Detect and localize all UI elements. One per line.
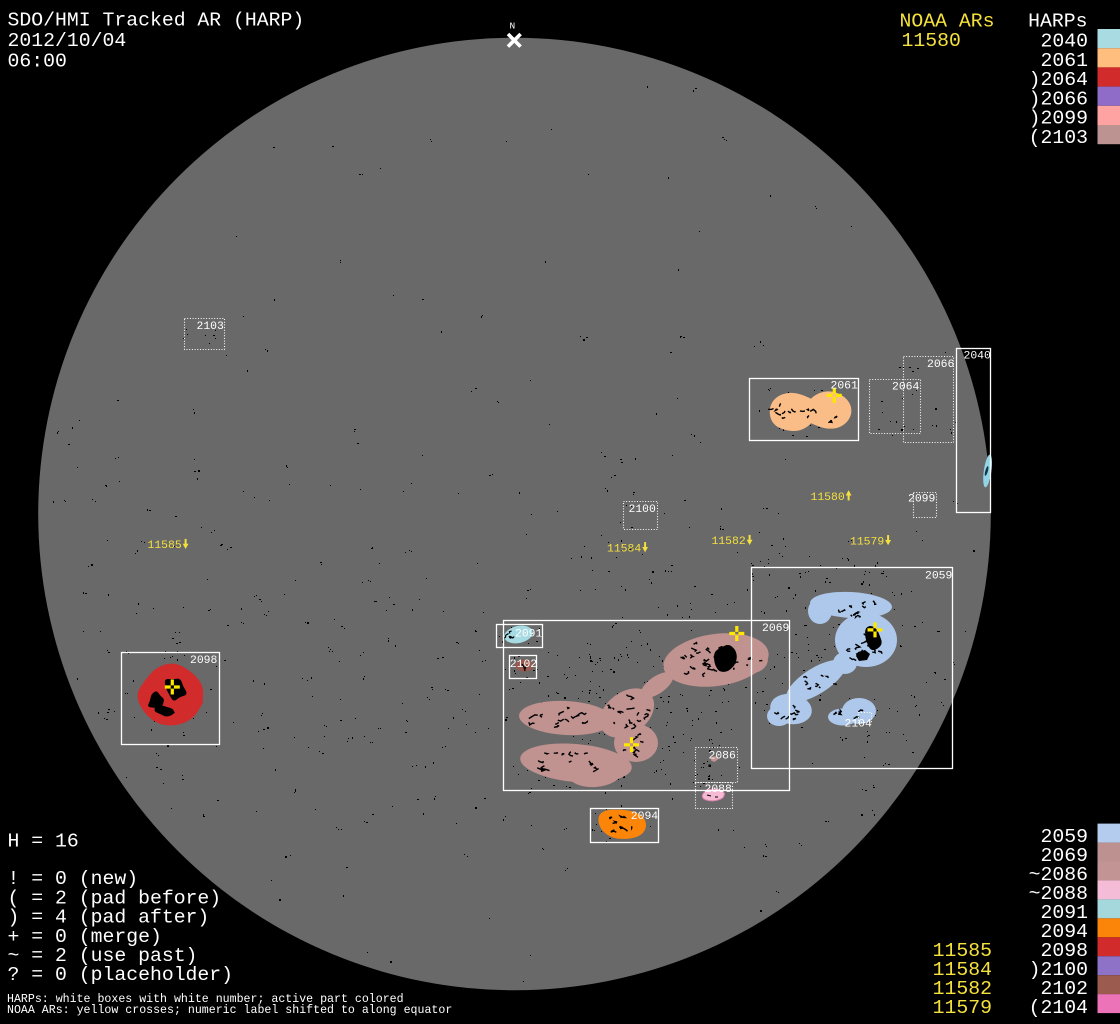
svg-text:11580: 11580 <box>902 30 961 52</box>
svg-text:2099: 2099 <box>908 494 936 506</box>
svg-text:11585: 11585 <box>148 540 182 552</box>
svg-text:06:00: 06:00 <box>8 50 67 72</box>
svg-text:2012/10/04: 2012/10/04 <box>8 30 127 52</box>
svg-text:H = 16: H = 16 <box>8 830 79 852</box>
svg-text:11582: 11582 <box>712 536 746 548</box>
svg-text:2100: 2100 <box>629 504 657 516</box>
svg-text:NOAA ARs: yellow crosses; nume: NOAA ARs: yellow crosses; numeric label … <box>7 1004 452 1017</box>
svg-text:11580: 11580 <box>811 492 845 504</box>
svg-text:11579: 11579 <box>850 536 884 548</box>
svg-text:11584: 11584 <box>607 543 641 555</box>
svg-text:2040: 2040 <box>964 351 992 363</box>
svg-text:2094: 2094 <box>631 811 659 823</box>
svg-text:2098: 2098 <box>190 655 218 667</box>
svg-text:HARPs: HARPs <box>1028 11 1087 33</box>
svg-text:2061: 2061 <box>831 381 859 393</box>
svg-text:2104: 2104 <box>845 719 873 731</box>
svg-text:2103: 2103 <box>197 321 225 333</box>
svg-text:(2103: (2103 <box>1029 127 1088 149</box>
svg-text:2088: 2088 <box>705 784 733 796</box>
svg-text:2059: 2059 <box>925 570 953 582</box>
svg-text:? = 0 (placeholder): ? = 0 (placeholder) <box>8 964 234 986</box>
svg-text:SDO/HMI Tracked AR (HARP): SDO/HMI Tracked AR (HARP) <box>8 10 305 32</box>
svg-text:2064: 2064 <box>892 382 920 394</box>
svg-text:2091: 2091 <box>515 628 543 640</box>
svg-text:2069: 2069 <box>762 623 790 635</box>
svg-text:N: N <box>510 21 516 32</box>
svg-text:2102: 2102 <box>510 659 538 671</box>
svg-text:2066: 2066 <box>927 359 955 371</box>
svg-text:(2104: (2104 <box>1029 997 1088 1019</box>
svg-text:2086: 2086 <box>709 751 737 763</box>
svg-text:11579: 11579 <box>933 997 992 1019</box>
